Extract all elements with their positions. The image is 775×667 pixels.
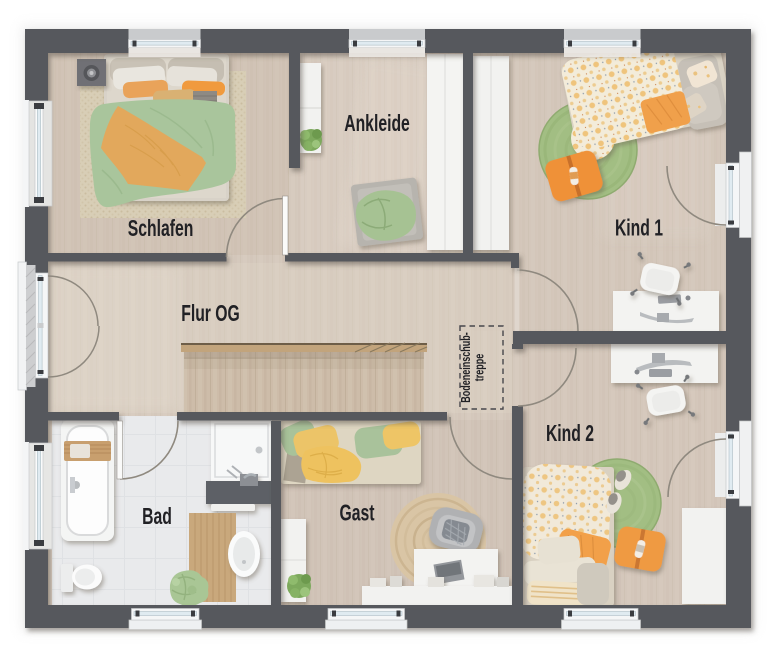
svg-text:Schlafen: Schlafen <box>128 216 194 242</box>
svg-text:treppe: treppe <box>473 354 487 381</box>
svg-text:Bad: Bad <box>142 504 172 530</box>
svg-text:Gast: Gast <box>339 501 374 527</box>
svg-text:Kind 1: Kind 1 <box>615 216 663 242</box>
svg-text:Kind 2: Kind 2 <box>546 421 594 447</box>
svg-text:Bodeneinschub-: Bodeneinschub- <box>460 332 474 403</box>
svg-text:Flur OG: Flur OG <box>181 301 240 327</box>
svg-text:Ankleide: Ankleide <box>344 111 410 137</box>
